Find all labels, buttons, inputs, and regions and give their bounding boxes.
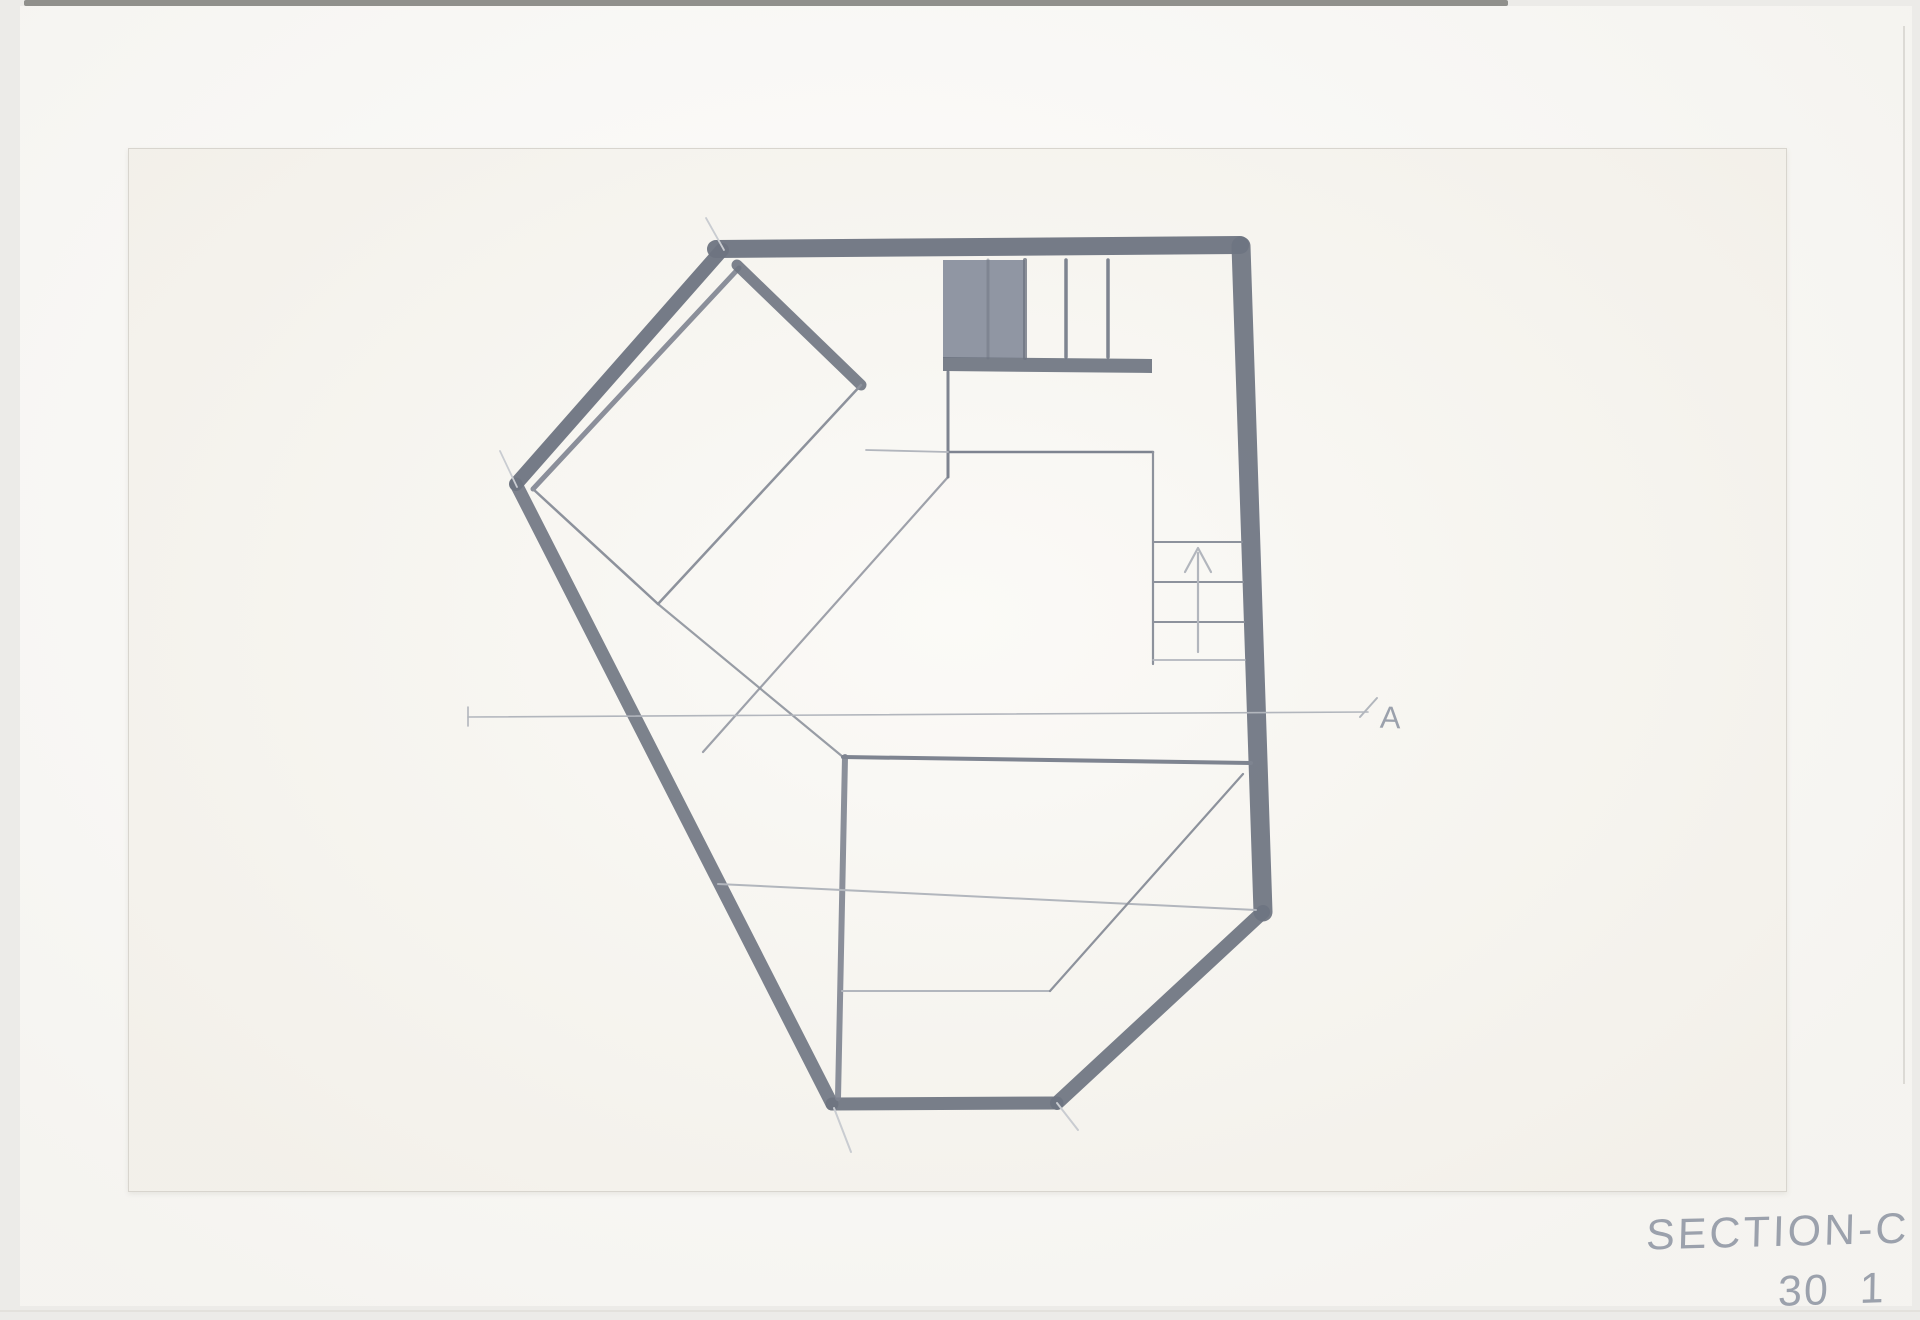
section-marker-label: A (1379, 700, 1402, 737)
roof-beam-diagonal (737, 265, 861, 385)
lower-floor-faint (718, 884, 1256, 910)
window-sill-band (943, 357, 1152, 373)
construction-overshoot-bottom-left (834, 1108, 851, 1152)
interior-diagonal-a (703, 477, 948, 752)
photo-background: A SECTION-C 30 1 (0, 0, 1920, 1320)
construction-overshoot-bottom-right (1057, 1103, 1078, 1130)
wall-bottom (832, 1103, 1057, 1104)
section-cut-tick-right (1360, 698, 1377, 717)
loft-room-edge-right (658, 385, 861, 604)
wall-right (1241, 246, 1263, 912)
wall-lower-left (516, 484, 832, 1104)
section-cut-line (468, 712, 1368, 717)
wall-lower-right-diagonal (1057, 912, 1263, 1103)
wall-upper-left-inner-face (533, 268, 739, 489)
mid-vertical-post (838, 757, 845, 1098)
wall-top (716, 245, 1240, 249)
mid-floor-ledge (843, 757, 1251, 763)
section-drawing (0, 0, 1920, 1320)
window-panel-solid (943, 260, 1025, 358)
construction-overshoot-left-corner (500, 451, 517, 487)
upper-floor-line-extension (866, 450, 948, 452)
wall-upper-left (516, 250, 722, 484)
